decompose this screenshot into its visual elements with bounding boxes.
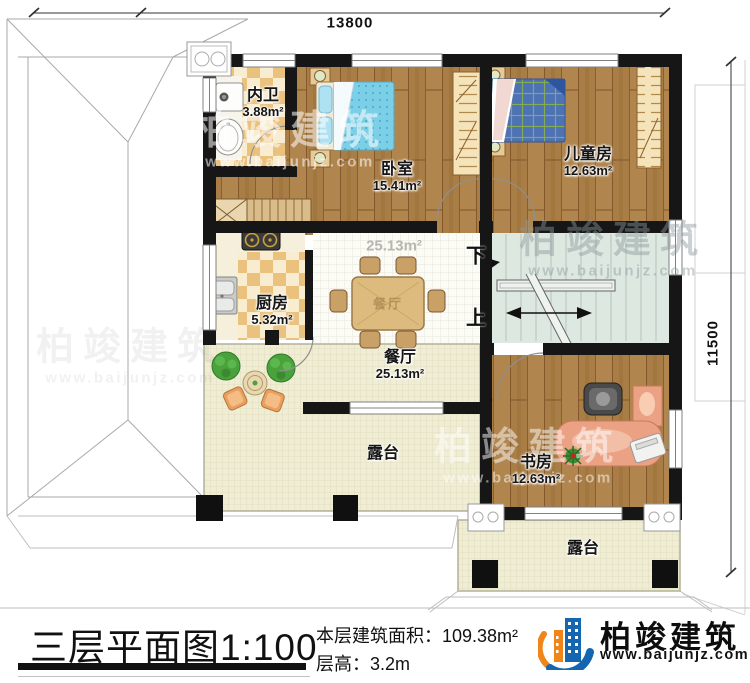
dining-table-label: 餐厅 bbox=[373, 294, 403, 313]
window-icon bbox=[669, 220, 682, 275]
outdoor-table-icon bbox=[243, 371, 267, 395]
label-terrace-front: 露台 bbox=[567, 540, 599, 558]
label-study: 书房 12.63m² bbox=[512, 454, 560, 486]
title-underline-thin bbox=[18, 676, 310, 677]
study-plant-icon bbox=[563, 446, 583, 466]
label-kitchen: 厨房 5.32m² bbox=[251, 295, 292, 327]
brand-logo-icon bbox=[538, 614, 596, 670]
floor-terrace-main bbox=[204, 344, 480, 511]
washer-icon bbox=[216, 83, 243, 111]
dimension-line-right bbox=[726, 57, 736, 577]
window-icon bbox=[525, 507, 622, 520]
window-icon bbox=[669, 410, 682, 468]
ornate-post-icon bbox=[187, 42, 231, 76]
label-kids-room: 儿童房 12.63m² bbox=[564, 146, 612, 178]
title-underline bbox=[18, 663, 306, 670]
ornate-post-icon bbox=[468, 504, 504, 531]
label-dining: 餐厅 25.13m² bbox=[376, 349, 424, 381]
plant-icon bbox=[267, 354, 295, 382]
label-terrace-main: 露台 bbox=[367, 445, 399, 463]
bedroom-closet-icon bbox=[453, 72, 480, 175]
sink-icon bbox=[213, 119, 243, 155]
stairs-up-label: 上 bbox=[466, 302, 486, 331]
dimension-height: 11500 bbox=[705, 320, 722, 366]
column bbox=[472, 560, 498, 588]
page-title-text: 三层平面图 bbox=[30, 627, 220, 668]
window-icon bbox=[243, 54, 295, 67]
floor-height-stat: 层高：3.2m bbox=[316, 650, 410, 676]
dimension-width: 13800 bbox=[327, 15, 374, 32]
plant-icon bbox=[212, 352, 240, 380]
floor-area-stat: 本层建筑面积：109.38m² bbox=[316, 622, 518, 648]
stairs-down-label: 下 bbox=[466, 240, 486, 269]
floor-plan-page: 柏竣建筑 www.baijunjz.com 柏竣建筑 www.baijunjz.… bbox=[0, 0, 750, 683]
ornate-post-icon bbox=[644, 504, 680, 531]
page-title-scale: 1:100 bbox=[220, 627, 318, 668]
window-icon bbox=[352, 54, 442, 67]
window-icon bbox=[203, 245, 216, 330]
dining-ghost-area: 25.13m² bbox=[366, 238, 422, 255]
window-icon bbox=[526, 54, 618, 67]
column bbox=[652, 560, 678, 588]
column bbox=[333, 495, 358, 521]
kids-closet-icon bbox=[637, 62, 661, 168]
brand-website: www.baijunjz.com bbox=[600, 647, 749, 663]
office-chair-icon bbox=[584, 383, 622, 415]
label-bathroom: 内卫 3.88m² bbox=[242, 87, 283, 119]
window-icon bbox=[203, 78, 216, 112]
label-bedroom: 卧室 15.41m² bbox=[373, 161, 421, 193]
window-icon bbox=[350, 402, 443, 414]
floor-plan-drawing bbox=[0, 0, 750, 683]
column bbox=[196, 495, 223, 521]
